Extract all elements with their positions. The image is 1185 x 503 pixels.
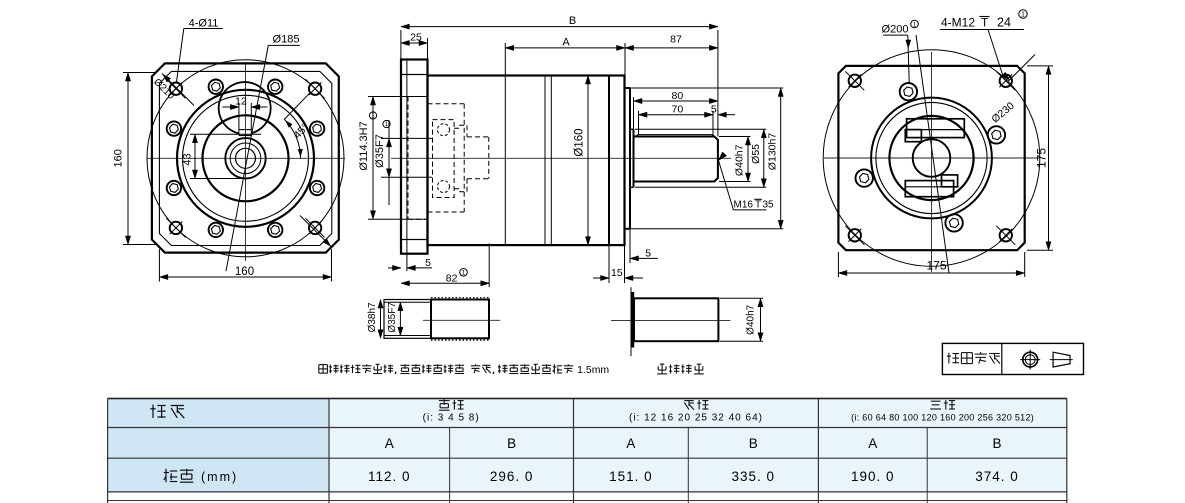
svg-text:70: 70 (672, 103, 684, 115)
svg-text:(i: 12 16 20 25 32 40 64): (i: 12 16 20 25 32 40 64) (629, 413, 763, 424)
svg-text:A: A (868, 436, 877, 451)
svg-text:Ø200: Ø200 (882, 24, 909, 36)
svg-text:Ø35F7: Ø35F7 (374, 134, 386, 168)
svg-text:Ø160: Ø160 (574, 128, 586, 156)
svg-text:5: 5 (425, 257, 431, 269)
svg-text:Ø185: Ø185 (273, 34, 300, 46)
svg-text:24: 24 (997, 16, 1011, 30)
svg-text:(i: 60 64 80 100 120 160 200 2: (i: 60 64 80 100 120 160 200 256 320 512… (851, 413, 1034, 423)
svg-text:T: T (981, 16, 989, 30)
svg-text:(mm): (mm) (201, 470, 238, 484)
svg-text:B: B (507, 436, 516, 451)
svg-text:5: 5 (711, 103, 717, 115)
svg-text:43: 43 (182, 153, 194, 165)
svg-text:35: 35 (763, 199, 775, 210)
svg-text:Ø55: Ø55 (750, 144, 762, 164)
svg-text:15: 15 (611, 267, 623, 279)
svg-text:25: 25 (410, 32, 422, 44)
svg-text:1: 1 (371, 113, 375, 120)
svg-text:1.5mm: 1.5mm (577, 364, 609, 376)
svg-text:190. 0: 190. 0 (851, 469, 895, 484)
svg-text:A: A (562, 36, 570, 48)
svg-text:160: 160 (235, 266, 254, 278)
svg-text:Ø114.3H7: Ø114.3H7 (358, 121, 370, 170)
svg-text:4-M12: 4-M12 (941, 16, 975, 30)
svg-text:Ø38h7: Ø38h7 (367, 302, 378, 332)
svg-text:175: 175 (1035, 148, 1049, 168)
svg-text:151. 0: 151. 0 (609, 469, 653, 484)
svg-text:Ø35F7: Ø35F7 (387, 302, 398, 333)
svg-text:A: A (385, 436, 394, 451)
svg-text:4-Ø11: 4-Ø11 (189, 18, 219, 30)
svg-text:335. 0: 335. 0 (732, 469, 776, 484)
svg-text:1: 1 (913, 21, 917, 28)
svg-text:B: B (749, 436, 758, 451)
svg-text:5: 5 (645, 247, 651, 259)
svg-text:175: 175 (926, 259, 946, 273)
svg-text:A: A (626, 436, 635, 451)
svg-text:Ø40h7: Ø40h7 (734, 144, 746, 176)
svg-text:(i: 3 4 5 8): (i: 3 4 5 8) (423, 413, 480, 424)
svg-text:160: 160 (113, 149, 125, 167)
svg-text:1: 1 (1021, 11, 1025, 19)
svg-text:82: 82 (446, 272, 458, 284)
svg-text:112. 0: 112. 0 (368, 469, 411, 484)
svg-text:87: 87 (670, 34, 682, 46)
svg-text:B: B (992, 436, 1001, 451)
svg-text:T: T (755, 199, 761, 210)
svg-text:Ø40h7: Ø40h7 (745, 304, 756, 334)
svg-text:B: B (569, 15, 576, 27)
svg-text:296. 0: 296. 0 (490, 469, 534, 484)
svg-text:12: 12 (235, 96, 247, 108)
svg-text:374. 0: 374. 0 (975, 469, 1019, 484)
svg-text:Ø130h7: Ø130h7 (766, 133, 778, 171)
svg-text:1: 1 (385, 121, 389, 128)
svg-text:M16: M16 (734, 199, 754, 210)
svg-text:1: 1 (462, 270, 466, 277)
svg-text:80: 80 (672, 90, 684, 102)
